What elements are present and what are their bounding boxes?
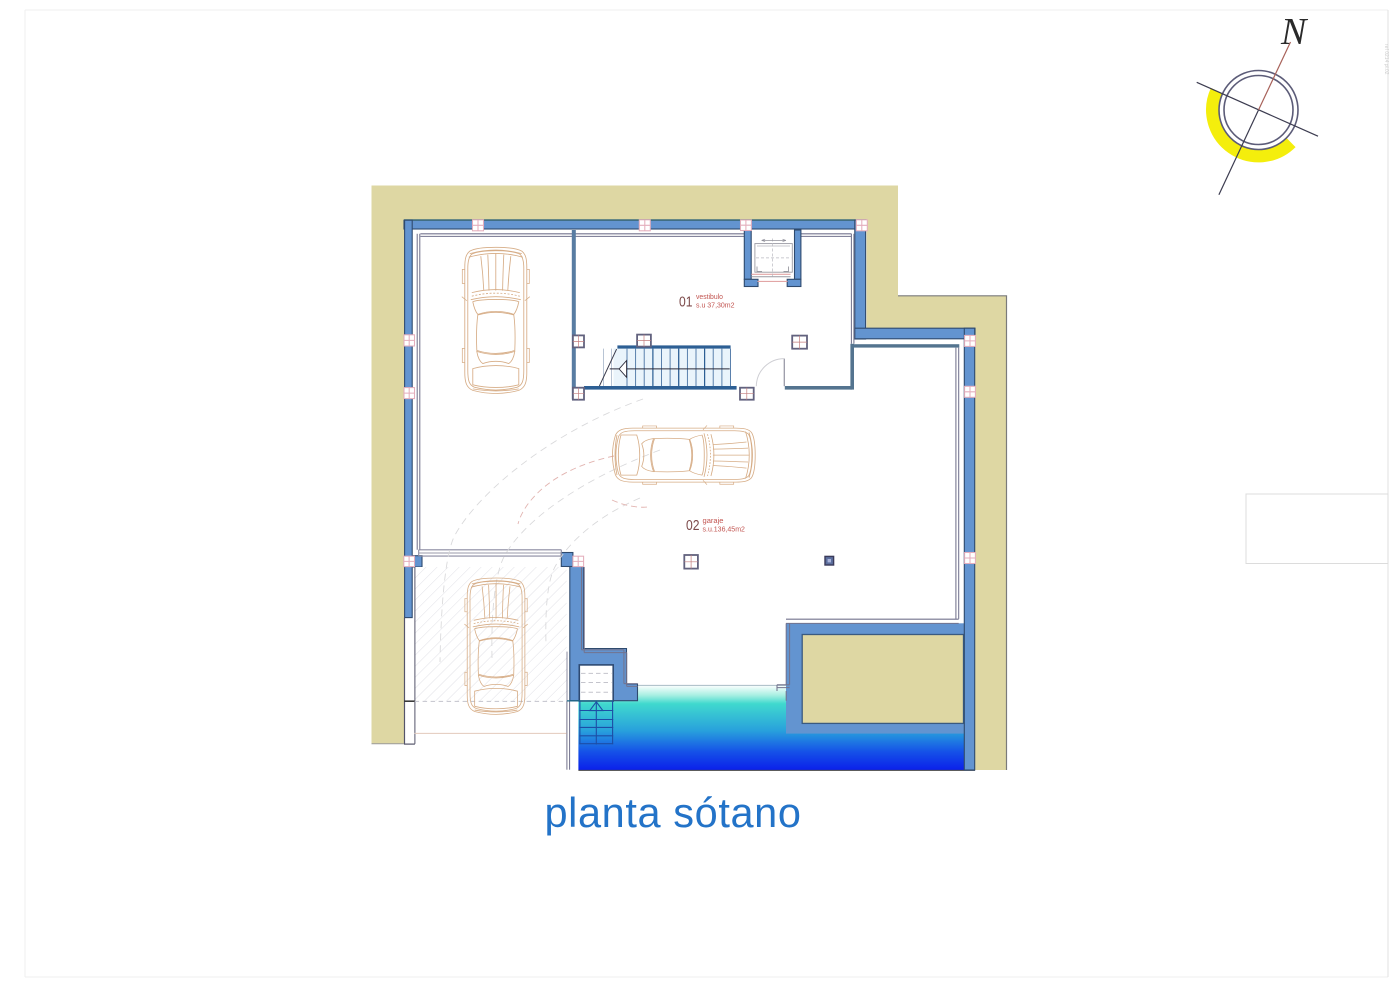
svg-text:planta sótano: planta sótano xyxy=(545,789,802,836)
svg-text:s.u.136,45m2: s.u.136,45m2 xyxy=(703,527,746,534)
svg-text:s.u 37,30m2: s.u 37,30m2 xyxy=(696,303,735,310)
svg-text:01: 01 xyxy=(679,295,693,311)
svg-text:N: N xyxy=(1280,11,1309,53)
svg-text:vestibulo: vestibulo xyxy=(696,294,723,301)
svg-text:ref 0214 pl.02: ref 0214 pl.02 xyxy=(1383,44,1389,75)
svg-text:garaje: garaje xyxy=(703,518,724,525)
svg-text:02: 02 xyxy=(686,518,700,534)
